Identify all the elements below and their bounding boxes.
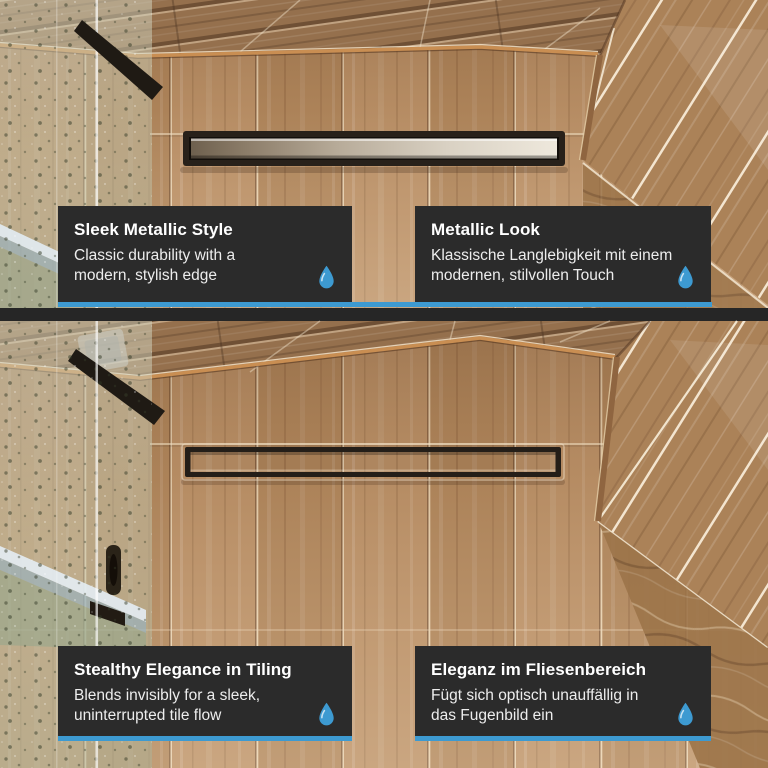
card-accent-bar	[58, 736, 352, 741]
card-body: Fügt sich optisch unauffällig in das Fug…	[431, 686, 649, 725]
water-drop-icon	[316, 701, 337, 728]
shower-drain-infographic: Sleek Metallic Style Classic durability …	[0, 0, 768, 768]
card-body: Klassische Langlebigkeit mit einem moder…	[431, 246, 695, 285]
water-drop-icon	[675, 701, 696, 728]
card-title: Metallic Look	[431, 219, 695, 240]
water-drop-icon	[316, 264, 337, 291]
info-card-metallic-de: Metallic Look Klassische Langlebigkeit m…	[415, 206, 711, 302]
card-body: Blends invisibly for a sleek, uninterrup…	[74, 686, 336, 725]
accent-strip	[58, 302, 712, 307]
separator-bar	[0, 308, 768, 321]
water-drop-icon	[675, 264, 696, 291]
card-accent-bar	[415, 736, 711, 741]
card-title: Sleek Metallic Style	[74, 219, 336, 240]
info-card-metallic-en: Sleek Metallic Style Classic durability …	[58, 206, 352, 302]
info-card-tile-de: Eleganz im Fliesenbereich Fügt sich opti…	[415, 646, 711, 741]
card-title: Stealthy Elegance in Tiling	[74, 659, 336, 680]
card-title: Eleganz im Fliesenbereich	[431, 659, 695, 680]
card-body: Classic durability with a modern, stylis…	[74, 246, 279, 285]
info-card-tile-en: Stealthy Elegance in Tiling Blends invis…	[58, 646, 352, 741]
